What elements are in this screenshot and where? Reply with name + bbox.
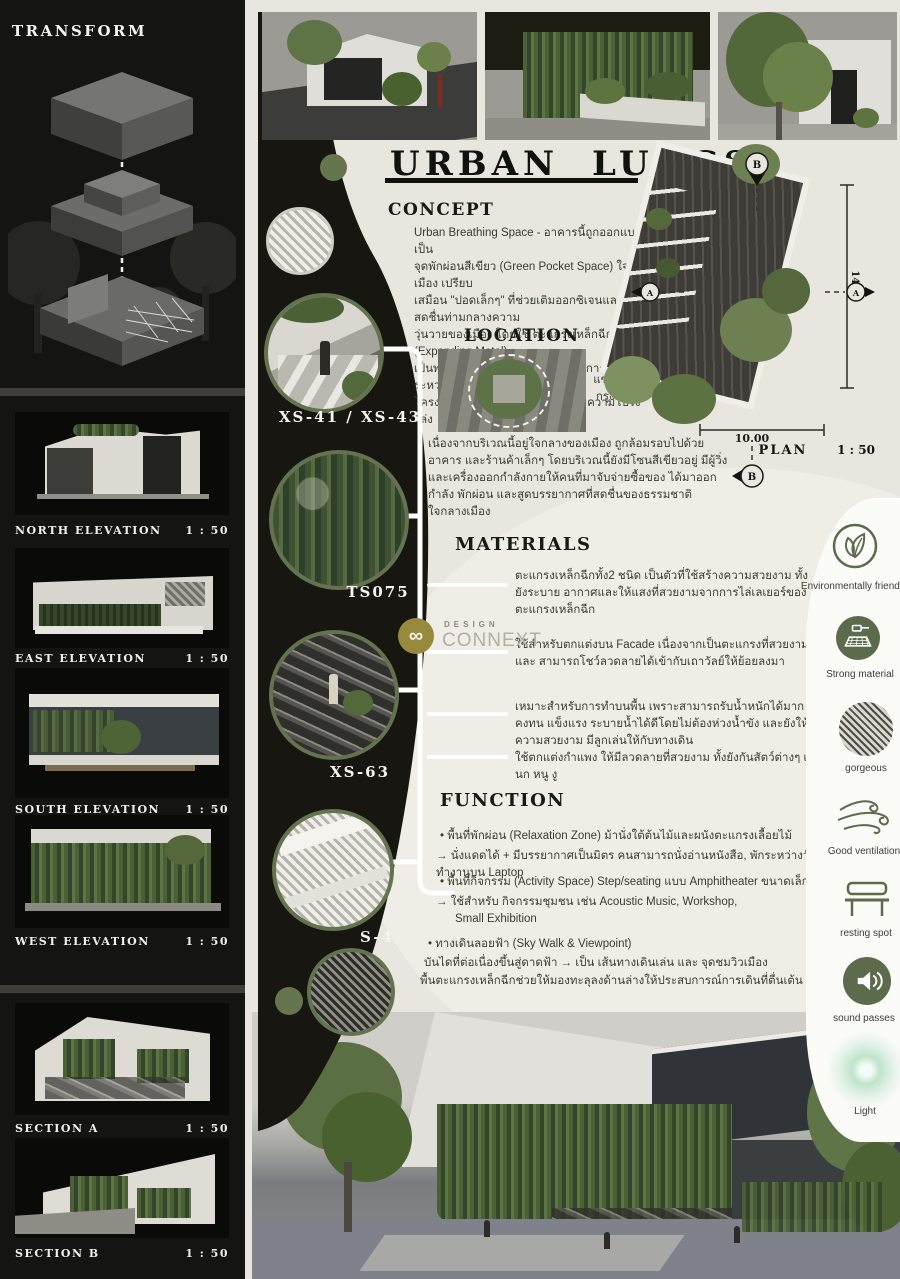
street-lamp — [438, 74, 442, 108]
map-site-circle — [468, 354, 550, 428]
concept-heading: CONCEPT — [388, 200, 494, 220]
location-heading: LOCATION — [464, 326, 580, 346]
elevation-name: EAST ELEVATION — [15, 652, 146, 665]
detail-circle-xs63 — [269, 630, 399, 760]
benefit-label: gorgeous — [845, 763, 887, 774]
elevation-name: NORTH ELEVATION — [15, 524, 162, 537]
render-photo-street-view — [262, 12, 477, 140]
material-item: ใช้ตกแต่งกำแพง ให้มีลวดลายที่สวยงาม ทั้ง… — [515, 750, 825, 784]
transform-panel: TRANSFORM — [0, 0, 245, 388]
section-name: SECTION A — [15, 1122, 99, 1135]
function-line: • พื้นที่กิจกรรม (Activity Space) Step/s… — [440, 874, 840, 891]
plan-annotations: B 14.00 A A 10.00 B PLAN 1 : 50 — [600, 140, 900, 500]
satellite-map — [438, 349, 586, 432]
north-elevation-label: NORTH ELEVATION 1 : 50 — [15, 524, 229, 537]
marker-letter-b: B — [748, 472, 756, 483]
marker-letter-b: B — [753, 160, 761, 171]
bench-icon — [842, 878, 892, 920]
function-line: → ใช้สำหรับ กิจกรรมชุมชน เช่น Acoustic M… — [436, 894, 836, 911]
exploded-axonometric-diagram — [8, 58, 236, 378]
detail-circle-label: XS-63 — [330, 763, 390, 781]
section-a-image — [15, 1003, 229, 1115]
detail-circle-s4 — [272, 809, 394, 931]
section-a-label: SECTION A 1 : 50 — [15, 1122, 229, 1135]
section-scale: 1 : 50 — [185, 1247, 229, 1260]
marker-letter-a: A — [852, 288, 860, 298]
material-item: ตะแกรงเหล็กฉีกทั้ง2 ชนิด เป็นตัวที่ใช้สร… — [515, 568, 815, 619]
east-elevation-image — [15, 548, 229, 648]
west-elevation-label: WEST ELEVATION 1 : 50 — [15, 935, 229, 948]
material-item: ใช้สำหรับตกแต่งบน Facade เนื่องจากเป็นตะ… — [515, 637, 815, 671]
speaker-icon — [843, 957, 891, 1005]
benefit-label: resting spot — [840, 928, 892, 939]
section-scale: 1 : 50 — [185, 1122, 229, 1135]
transform-title: TRANSFORM — [12, 22, 147, 40]
detail-circle-label: XS-41 / XS-43 — [279, 408, 421, 426]
marker-letter-a: A — [646, 288, 654, 298]
render-photo-vine-wall — [485, 12, 710, 140]
design-connext-logo: ∞ — [398, 618, 434, 654]
south-elevation-image — [15, 668, 229, 798]
function-line: พื้นตะแกรงเหล็กฉีกช่วยให้มองทะลุลงด้านล่… — [420, 973, 810, 990]
function-line: • ทางเดินลอยฟ้า (Sky Walk & Viewpoint) — [428, 936, 788, 953]
materials-heading: MATERIALS — [455, 534, 592, 555]
render-photo-entrance — [718, 12, 897, 140]
section-b-label: SECTION B 1 : 50 — [15, 1247, 229, 1260]
material-item: เหมาะสำหรับการทำบนพื้น เพราะสามารถรับน้ำ… — [515, 699, 825, 750]
leaf-icon — [831, 522, 879, 570]
north-elevation-image — [15, 412, 229, 515]
benefit-label: Light — [854, 1106, 876, 1117]
person-figure — [484, 1220, 490, 1237]
plan-scale: 1 : 50 — [837, 443, 875, 457]
section-name: SECTION B — [15, 1247, 100, 1260]
detail-circle-label: S-4 — [360, 928, 394, 946]
elevation-scale: 1 : 50 — [185, 524, 229, 537]
metal-detail-circle — [266, 207, 334, 275]
left-sidebar: TRANSFORM — [0, 0, 245, 1279]
elevation-scale: 1 : 50 — [185, 652, 229, 665]
function-heading: FUNCTION — [440, 790, 565, 811]
detail-circle-label: TS075 — [346, 583, 409, 601]
elevation-scale: 1 : 50 — [185, 935, 229, 948]
benefit-label: Environmentally friendly — [801, 581, 900, 592]
mesh-texture-icon — [839, 702, 893, 756]
function-line: บันไดที่ต่อเนื่องขึ้นสู่ดาดฟ้า → เป็น เส… — [424, 955, 804, 972]
wind-icon — [836, 796, 896, 840]
elevation-name: WEST ELEVATION — [15, 935, 150, 948]
plan-label: PLAN — [759, 443, 808, 458]
light-glow-icon — [826, 1030, 900, 1110]
person-figure — [604, 1232, 610, 1249]
function-line: Small Exhibition — [455, 911, 755, 928]
benefit-label: Strong material — [826, 669, 894, 680]
west-elevation-image — [15, 815, 229, 928]
detail-circle-ts075 — [269, 450, 409, 590]
watermark-design: DESIGN — [444, 620, 499, 629]
section-b-image — [15, 1138, 229, 1238]
olive-accent-dot — [275, 987, 303, 1015]
olive-accent-dot — [320, 154, 347, 181]
benefit-label: Good ventilation — [828, 846, 900, 857]
watermark-connext: CONNEXT — [442, 630, 542, 652]
mesh-detail-circle — [307, 948, 395, 1036]
presentation-board: TRANSFORM — [0, 0, 900, 1279]
function-line: • พื้นที่พักผ่อน (Relaxation Zone) ม้านั… — [440, 828, 840, 845]
hammer-mesh-icon — [836, 616, 880, 660]
east-elevation-label: EAST ELEVATION 1 : 50 — [15, 652, 229, 665]
benefit-label: sound passes — [833, 1013, 895, 1024]
detail-circle-xs41 — [264, 293, 384, 413]
person-figure — [734, 1226, 740, 1243]
